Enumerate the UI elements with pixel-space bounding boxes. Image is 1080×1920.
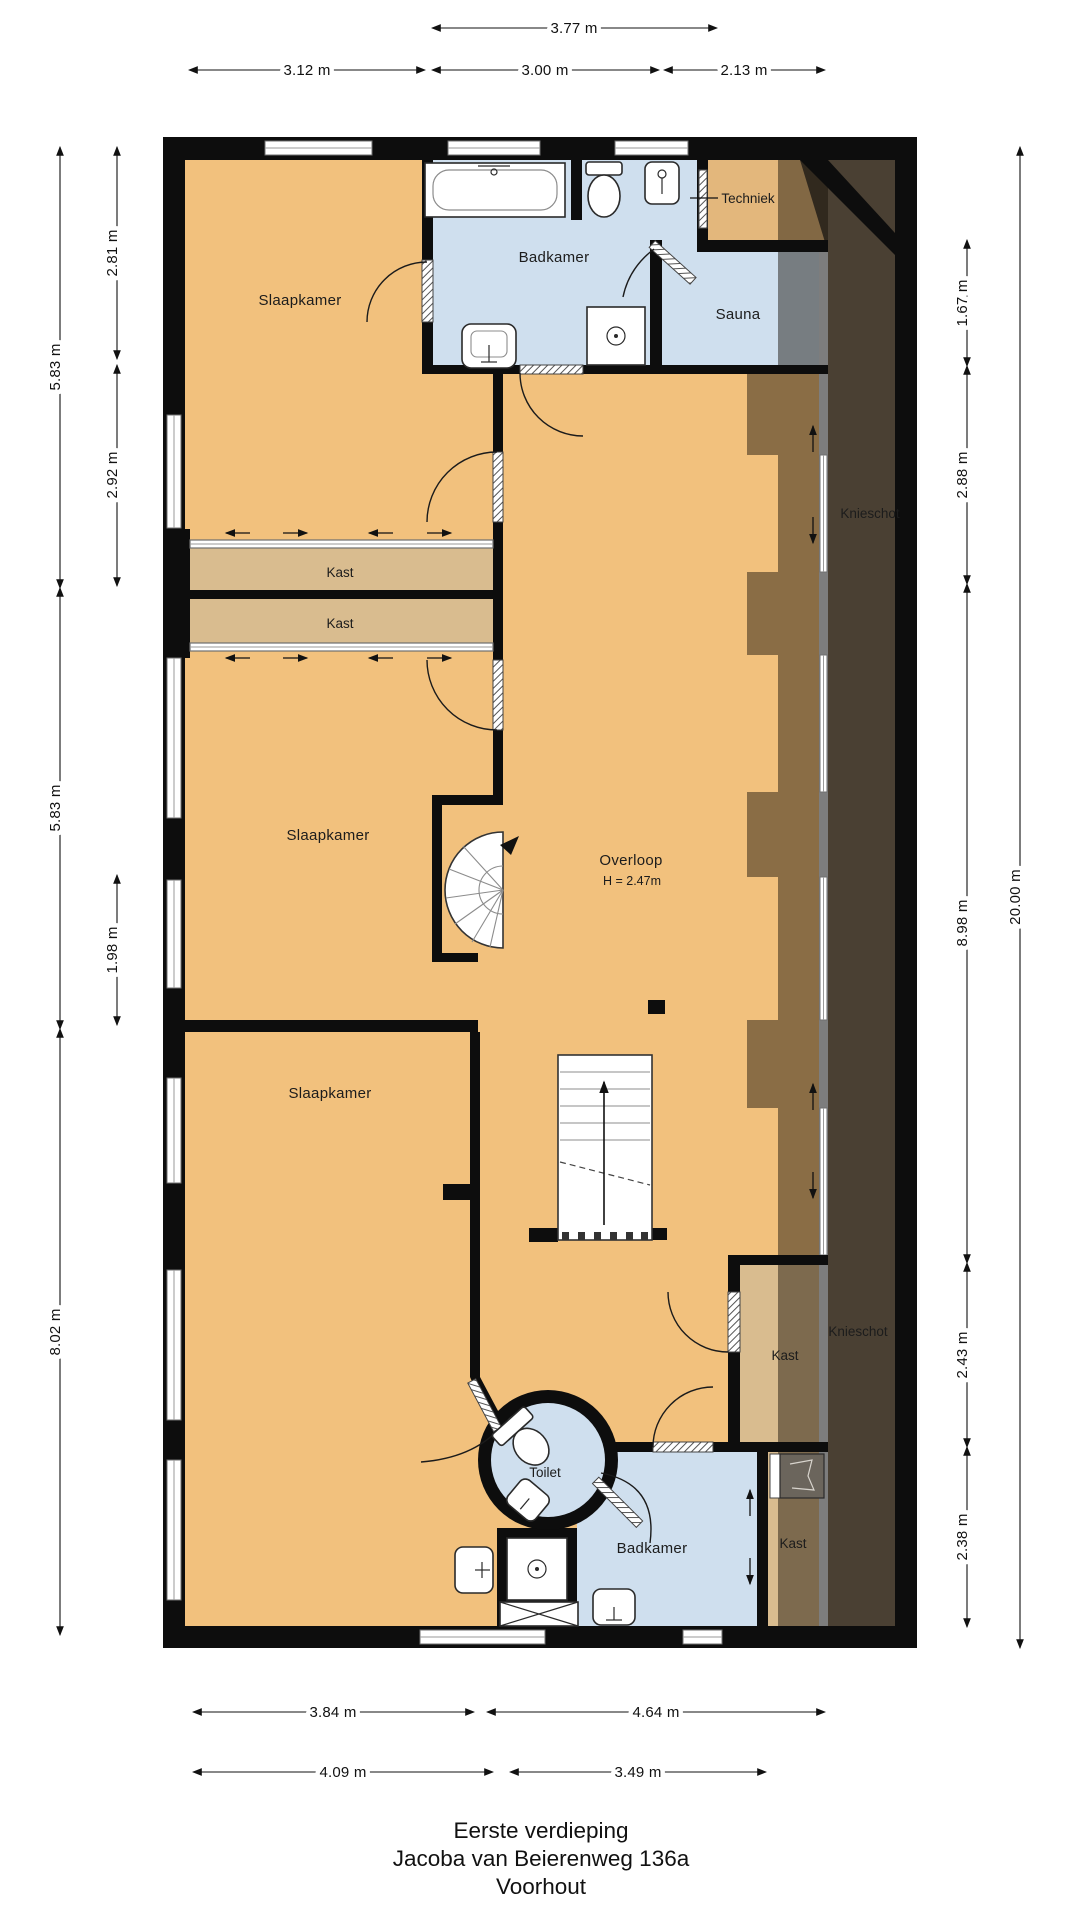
wall-bed2-bed3	[185, 1020, 478, 1032]
dim-left-outer-1: 5.83 m	[47, 343, 64, 390]
label-sauna: Sauna	[716, 306, 761, 323]
wall-bed3-overloop	[470, 1032, 480, 1377]
wall-kastlow1-top	[728, 1255, 828, 1265]
door-badkamer-bottom	[653, 1442, 713, 1452]
dim-top-right: 2.13 m	[720, 62, 767, 79]
title-floor: Eerste verdieping	[453, 1818, 628, 1843]
wall-step	[432, 795, 503, 805]
title-city: Voorhout	[496, 1874, 587, 1899]
dim-right-2: 2.88 m	[954, 451, 971, 498]
label-kast-top2: Kast	[326, 616, 353, 631]
door-techniek	[699, 170, 707, 228]
label-knieschot-bottom: Knieschot	[828, 1324, 888, 1339]
wall-stub-stair-right	[652, 1228, 667, 1240]
dim-bottom-1b: 4.64 m	[632, 1704, 679, 1721]
wall-stair-nook	[432, 805, 442, 962]
door-kast-low1	[728, 1292, 740, 1352]
dim-right-4: 2.43 m	[954, 1331, 971, 1378]
label-badkamer1: Badkamer	[519, 249, 590, 266]
dim-top-left: 3.12 m	[283, 62, 330, 79]
boiler-icon	[645, 162, 679, 204]
shower-tray-cross	[500, 1602, 578, 1626]
dim-top-total: 3.77 m	[550, 20, 597, 37]
sink-badkamer-bottom	[593, 1589, 635, 1625]
title-address: Jacoba van Beierenweg 136a	[393, 1846, 690, 1871]
shower-bottom	[507, 1538, 567, 1600]
knee-wall-line	[819, 245, 828, 1626]
label-kast-low1: Kast	[771, 1348, 798, 1363]
label-overloop-height: H = 2.47m	[603, 874, 661, 888]
dim-left-outer-2: 5.83 m	[47, 784, 64, 831]
door-badkamer-top	[520, 365, 583, 374]
toilet-room	[478, 1390, 618, 1530]
wall-bath-stub	[571, 160, 582, 220]
dim-left-inner-1: 2.81 m	[104, 229, 121, 276]
sink-badkamer-top	[462, 324, 516, 368]
door-bed1-bath	[422, 260, 433, 322]
dim-right-3: 8.98 m	[954, 899, 971, 946]
dim-right-1: 1.67 m	[954, 279, 971, 326]
label-slaapkamer1: Slaapkamer	[258, 292, 341, 309]
wall-techniek-south	[697, 240, 828, 252]
dim-left-inner-2: 2.92 m	[104, 451, 121, 498]
label-toilet: Toilet	[529, 1465, 561, 1480]
dim-right-5: 2.38 m	[954, 1513, 971, 1560]
floorplan-drawing: Slaapkamer Slaapkamer Slaapkamer Badkame…	[0, 0, 1080, 1920]
floorplan-page: Slaapkamer Slaapkamer Slaapkamer Badkame…	[0, 0, 1080, 1920]
label-slaapkamer2: Slaapkamer	[286, 827, 369, 844]
wall-kast-divider	[185, 590, 503, 599]
dim-top-mid: 3.00 m	[521, 62, 568, 79]
straight-stair	[558, 1055, 652, 1240]
label-kast-low2: Kast	[779, 1536, 806, 1551]
door-bed1	[493, 452, 503, 522]
wall-chimney-stub	[443, 1184, 471, 1200]
dim-left-outer-3: 8.02 m	[47, 1308, 64, 1355]
door-bed2	[493, 660, 503, 730]
wall-sauna-west	[650, 240, 662, 373]
dim-left-inner-3: 1.98 m	[104, 926, 121, 973]
label-kast-top1: Kast	[326, 565, 353, 580]
wall-nook-bottom	[432, 953, 478, 962]
dim-bottom-2a: 4.09 m	[319, 1764, 366, 1781]
roof-band	[828, 252, 895, 1626]
dim-bottom-1a: 3.84 m	[309, 1704, 356, 1721]
shower-top	[587, 307, 645, 365]
title-block: Eerste verdieping Jacoba van Beierenweg …	[393, 1818, 690, 1899]
boiler-kast-low2	[770, 1454, 824, 1498]
label-slaapkamer3: Slaapkamer	[288, 1085, 371, 1102]
wall-badk2-east	[757, 1447, 768, 1626]
dim-bottom-2b: 3.49 m	[614, 1764, 661, 1781]
label-knieschot-top: Knieschot	[840, 506, 900, 521]
label-overloop: Overloop	[599, 852, 662, 869]
bathtub	[425, 163, 565, 217]
wall-stub-stair-left	[529, 1228, 558, 1242]
sink-bedroom3	[455, 1547, 493, 1593]
dim-right-total: 20.00 m	[1007, 869, 1024, 925]
label-badkamer2: Badkamer	[617, 1540, 688, 1557]
wall-kastlow1-west	[728, 1263, 740, 1447]
label-techniek: Techniek	[721, 191, 775, 206]
wall-stub-overloop	[648, 1000, 665, 1014]
wall-overloop-west-upper	[493, 373, 503, 805]
wc-top	[586, 162, 622, 217]
